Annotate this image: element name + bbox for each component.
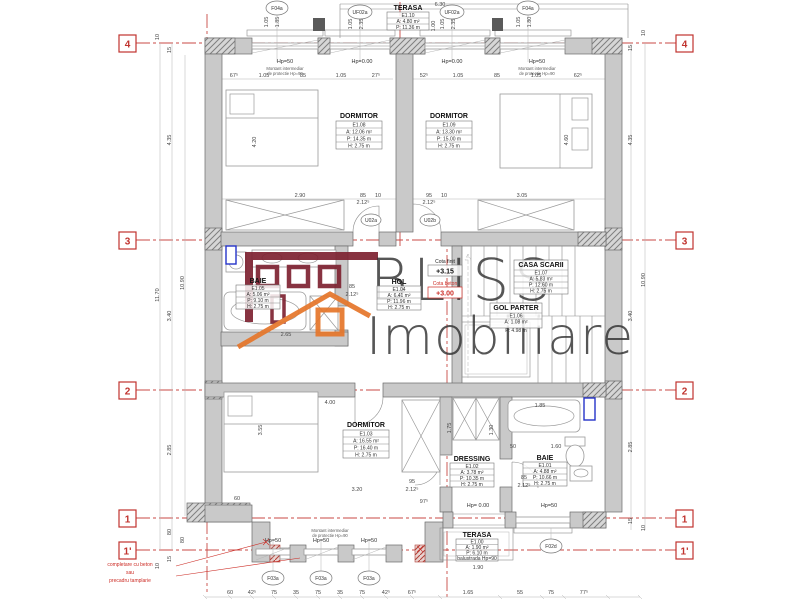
dimension-label: 80 [180,537,186,543]
dimension-label: 50 [510,444,516,450]
svg-text:sau: sau [126,570,134,576]
hp-label: Hp=0.00 [352,59,373,65]
room-name: DORMITOR [347,422,385,429]
room-label-dormitor-nw: DORMITOR E1.08 A: 12.06 m² P: 14.35 m H:… [336,113,382,150]
dimension-label: 4.00 [325,400,336,406]
window-tag-f04a-right: F04a [517,1,539,15]
svg-text:UF02a: UF02a [444,10,459,16]
dimension-label: 85 [360,193,366,199]
room-perimeter: P: 14.35 m [347,137,371,143]
dimension-label: 10 [375,193,381,199]
dimension-label: 1.80 [527,17,533,28]
dimension-label: 97⁵ [420,498,428,505]
dimension-label: 2.65 [281,332,292,338]
dimension-label: 1.60 [551,444,562,450]
dimension-label: 2.35 [359,19,365,30]
dimension-label: 15 [167,556,173,562]
dimension-label: 1.85 [535,403,546,409]
grid-bubble-3-left: 3 [119,232,136,249]
room-name: BAIE [537,455,554,462]
dimension-label: 2.85 [167,445,173,456]
dimension-label: 15 [628,518,634,524]
dimension-label: 1.05 [336,73,347,79]
chimney-block-left [313,18,325,31]
cota-finit-label: Cota finit [435,259,455,265]
dimension-label: 2.12⁵ [518,482,531,489]
grid-bubble-4-right: 4 [676,35,693,52]
dimension-label: 52⁵ [420,72,428,79]
room-name: BAIE [250,278,267,285]
grid-bubble-1-left: 1 [119,510,136,527]
bed-s [224,392,318,472]
door-dormitor-s [355,397,383,425]
dimension-label: 75 [271,590,277,596]
hp-label: Hp=0.00 [442,59,463,65]
window-f02d [514,517,572,539]
dimension-label: 10 [155,34,161,40]
dimension-label: 4.20 [252,137,258,148]
dimension-label: 1.30 [489,425,495,436]
svg-text:precadru tamplarie: precadru tamplarie [109,578,151,584]
grid-bubble-1p-left: 1' [119,542,136,559]
cota-beton-label: Cota beton [433,281,458,287]
dimension-label: 1.05 [348,19,354,30]
room-name: TERASA [394,5,423,12]
svg-text:U02b: U02b [424,218,436,224]
dimension-label: 67⁵ [230,72,238,79]
dimension-label: 3.40 [167,311,173,322]
grid-label: 1' [124,547,132,558]
dimension-label: 62⁵ [574,72,582,79]
svg-text:UF02a: UF02a [352,10,367,16]
dimension-label: 15 [628,45,634,51]
hp-label: Hp=50 [529,59,545,65]
dimension-label: 10 [441,193,447,199]
dimension-label: 3.40 [628,311,634,322]
grid-label: 2 [682,387,688,398]
cota-finit-value: +3.15 [436,269,454,276]
dimension-label: 10 [641,525,647,531]
window-tag-uf02a-left: UF02a [348,5,372,19]
room-name: GOL PARTER [493,305,538,312]
dimension-label: 1.65 [463,590,474,596]
dimension-label: 42⁵ [382,589,390,596]
room-code: E1.09 [442,123,455,129]
dimension-label: 80 [167,529,173,535]
door-tag-u02a: U02a [361,214,381,226]
room-code: E1.08 [352,123,365,129]
dimension-label: 3.20 [352,487,363,493]
grid-label: 1' [681,547,689,558]
dimension-label: 77⁵ [580,589,588,596]
hp-label: Hp=50 [277,59,293,65]
dimension-label: 2.12⁵ [423,199,436,206]
hp-label: Hp=50 [541,503,557,509]
dimension-label: 85 [349,284,355,290]
room-name: HOL [392,279,408,286]
dimension-label: 75 [359,590,365,596]
dimension-label: 1.05 [440,19,446,30]
dimension-label: 95 [426,193,432,199]
dimension-label: 15 [167,47,173,53]
room-name: DORMITOR [340,113,378,120]
dimension-label: 10 [641,30,647,36]
room-perimeter: P: 15.00 m [437,137,461,143]
dimension-label: 4.60 [564,135,570,146]
dimension-label: 4.35 [628,135,634,146]
dimension-label: 10 [155,563,161,569]
svg-text:F03a: F03a [315,576,327,582]
window-tag-f03a-1: F03a [262,571,284,585]
room-code: E1.03 [359,432,372,438]
hp-label: Hp= 0.00 [467,503,489,509]
window-tag-f03a-2: F03a [310,571,332,585]
room-height: H: 2.75 m [355,453,377,459]
grid-label: 1 [682,515,688,526]
room-height: H: 2.75 m [247,304,269,310]
grid-bubble-2-left: 2 [119,382,136,399]
dimension-label: 1.05 [259,73,270,79]
dimension-label: 55 [517,590,523,596]
grid-bubble-4-left: 4 [119,35,136,52]
dimension-label: 35 [337,590,343,596]
hp-label: Hp=50 [313,538,329,544]
room-height: H: 2.75 m [534,481,556,487]
room-name: DRESSING [454,456,491,463]
svg-text:completare cu beton: completare cu beton [107,562,153,568]
dimension-label: 27⁵ [372,72,380,79]
room-area: A: 12.06 m² [346,130,372,136]
svg-text:F03a: F03a [267,576,279,582]
room-label-terasa-s: TERASA E1.00 A: 1.90 m² P: 6.10 m balust… [456,532,498,562]
room-label-baie-mid: BAIE E1.05 A: 5.06 m² P: 9.10 m H: 2.75 … [236,278,280,310]
room-name: TERASA [463,532,492,539]
room-height: H: 2.75 m [461,482,483,488]
dimension-label: 85 [300,73,306,79]
dimension-label: 85 [521,475,527,481]
door-terasa-s-threshold [453,514,505,525]
dimension-label: 1.05 [531,73,542,79]
dimension-label: 10.90 [180,276,186,290]
grid-label: 1 [125,515,131,526]
dimension-label: 85 [494,73,500,79]
window-tag-f04a-left: F04a [266,1,288,15]
window-f03a-2 [304,540,338,571]
dimension-label: 2.12⁵ [357,199,370,206]
cota-beton-value: +3.00 [436,291,454,298]
dimension-label: 11.70 [155,288,161,301]
dimension-label: 42⁵ [248,589,256,596]
svg-text:F04a: F04a [522,6,534,12]
room-perimeter: P: 16.40 m [354,446,378,452]
room-label-dormitor-s: DORMITOR E1.03 A: 16.55 m² P: 16.40 m H:… [343,422,389,459]
dimension-label: 2.35 [451,19,457,30]
dimension-label: 6.30 [435,2,446,8]
dimension-label: 10.90 [641,273,647,287]
dimension-label: 35 [293,590,299,596]
grid-bubble-1-right: 1 [676,510,693,527]
montant-note: de protectie Hp=90 [267,71,303,76]
svg-text:F03a: F03a [363,576,375,582]
room-label-dressing: DRESSING E1.02 A: 3.78 m² P: 10.35 m H: … [450,456,494,488]
room-area: A: 1.08 m² [504,320,527,326]
dimension-label: 1.75 [447,423,453,434]
door-tag-u02b: U02b [420,214,440,226]
room-height: H: 2.75 m [348,144,370,150]
grid-label: 4 [125,40,131,51]
bed-nw [226,90,318,166]
grid-label: 3 [682,237,688,248]
room-area: A: 16.55 m² [353,439,379,445]
svg-text:U02a: U02a [365,218,377,224]
room-height: H: 2.75 m [438,144,460,150]
room-note: balustrada Hp=90 [457,556,497,562]
grid-bubble-1p-right: 1' [676,542,693,559]
window-tag-f03a-3: F03a [358,571,380,585]
dimension-label: 4.35 [167,135,173,146]
dimension-label: 2.12⁵ [346,291,359,298]
window-tag-f02d: F02d [540,539,562,553]
grid-label: 4 [682,40,688,51]
room-label-dormitor-ne: DORMITOR E1.09 A: 13.30 m² P: 15.00 m H:… [426,113,472,150]
room-perimeter: P: 4.98 m [505,328,526,334]
floor-plan-canvas: BLISS Imobiliare 4 3 2 1 1' 4 3 2 1 1' D… [0,0,800,600]
logo-window-2 [289,267,308,286]
room-height: H: 2.75 m [388,305,410,311]
dimension-label: 1.90 [473,565,484,571]
dimension-label: 95 [409,479,415,485]
svg-text:F02d: F02d [545,544,557,550]
svg-text:F04a: F04a [271,6,283,12]
hp-label: Hp=50 [361,538,377,544]
dimension-label: 67⁵ [408,589,416,596]
dimension-label: 1.85 [275,17,281,28]
room-label-casa-scarii: CASA SCARII E1.07 A: 5.83 m² P: 12.60 m … [514,260,568,295]
dimension-label: 60 [234,496,240,502]
dimension-label: 1.05 [453,73,464,79]
room-area: A: 13.30 m² [436,130,462,136]
chimney-block-right [492,18,503,31]
dimension-label: 3.05 [517,193,528,199]
montant-note: de protectie Hp=90 [312,533,348,538]
room-perimeter: P: 11.36 m [396,25,420,31]
dimension-label: 75 [548,590,554,596]
grid-label: 2 [125,387,131,398]
dimension-label: 75 [315,590,321,596]
radiator-se [584,398,595,420]
dimension-label: 2.12⁵ [406,486,419,493]
grid-bubble-2-right: 2 [676,382,693,399]
window-f04a-right [495,15,571,62]
radiator-mid [226,246,236,264]
grid-bubble-3-right: 3 [676,232,693,249]
grid-label: 3 [125,237,131,248]
bed-ne [500,94,592,168]
dimension-label: 1.00 [431,21,437,32]
dimension-label: 3.55 [258,425,264,436]
dimension-label: 1.05 [516,17,522,28]
room-name: CASA SCARII [518,262,563,269]
window-f04a-left [247,15,323,62]
window-f03a-3 [352,540,386,571]
room-name: DORMITOR [430,113,468,120]
floor-plan-page: BLISS Imobiliare 4 3 2 1 1' 4 3 2 1 1' D… [0,0,800,600]
room-height: H: 2.75 m [530,289,552,295]
dimension-label: 1.05 [264,17,270,28]
dimension-label: 2.90 [295,193,306,199]
dimension-label: 60 [227,590,233,596]
dimension-label: 2.85 [628,442,634,453]
